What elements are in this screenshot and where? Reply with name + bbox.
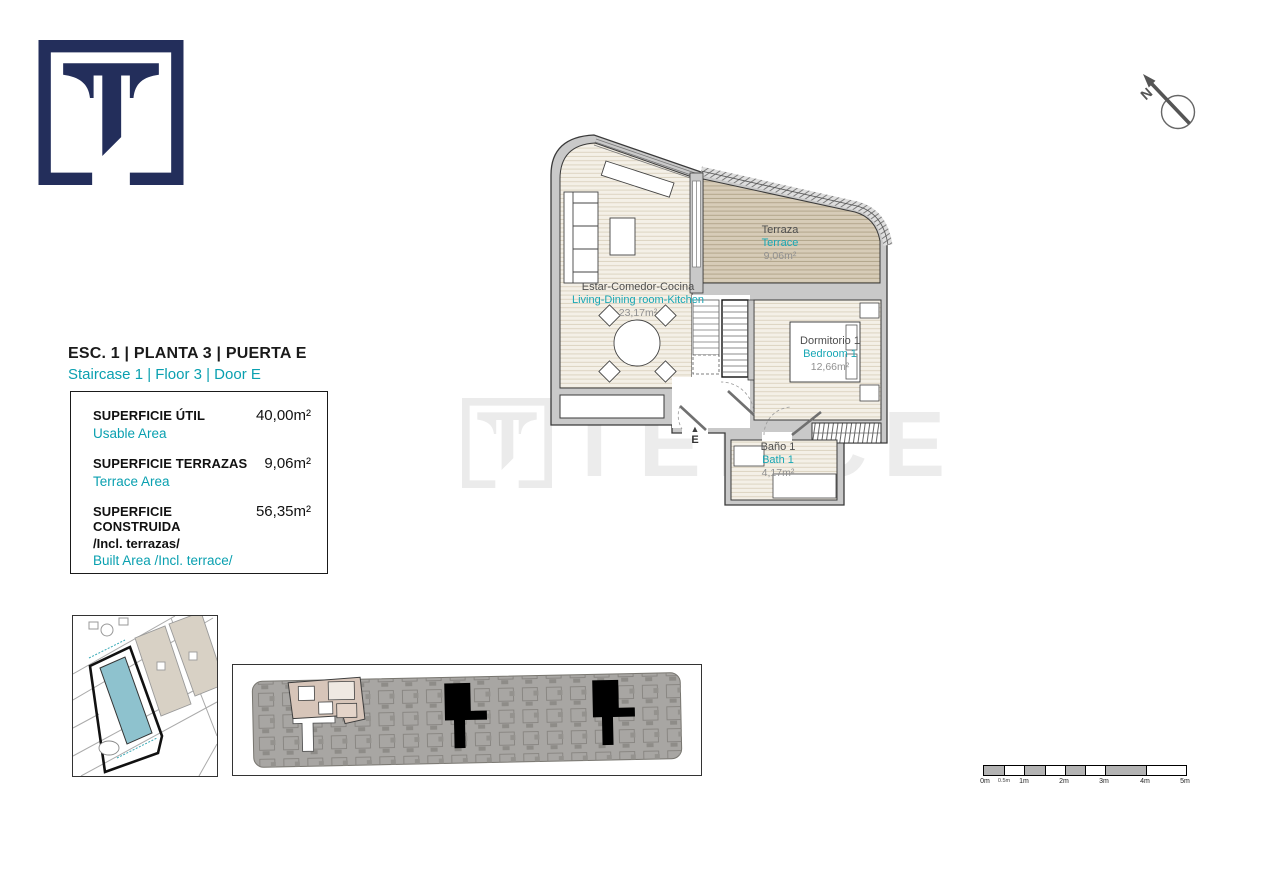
bedroom-label: Dormitorio 1 Bedroom 1 12,66m² (770, 335, 890, 373)
nightstand-top (860, 303, 879, 318)
bedroom-wall (748, 300, 754, 380)
area-row-usable: SUPERFICIE ÚTIL 40,00m² Usable Area (93, 407, 311, 441)
scale-tick-2m: 2m (1059, 778, 1069, 785)
terrace-label: Terraza Terrace 9,06m² (720, 224, 840, 262)
bath-label: Baño 1 Bath 1 4,17m² (728, 441, 828, 479)
title-english: Staircase 1 | Floor 3 | Door E (68, 366, 307, 383)
bedroom-area: 12,66m² (770, 361, 890, 373)
terrace-area: 9,06m² (720, 250, 840, 262)
bedroom-name-es: Dormitorio 1 (770, 335, 890, 348)
sofa (564, 192, 598, 283)
site-plan (72, 615, 218, 777)
scale-tick-3m: 3m (1099, 778, 1109, 785)
site-pool (99, 741, 119, 755)
terrace-label-es: SUPERFICIE TERRAZAS (93, 456, 247, 471)
scale-tick-0m: 0m (980, 778, 990, 785)
area-table: SUPERFICIE ÚTIL 40,00m² Usable Area SUPE… (70, 391, 328, 574)
site-neighbor-buildings (135, 616, 217, 716)
usable-label-en: Usable Area (93, 426, 311, 441)
bath-name-en: Bath 1 (728, 454, 828, 467)
north-compass-icon: N (1138, 72, 1204, 136)
scale-tick-5m: 5m (1180, 778, 1190, 785)
bath-door-opening (762, 432, 792, 441)
site-roundabout (89, 618, 128, 636)
bath-area: 4,17m² (728, 467, 828, 479)
usable-value: 40,00m² (256, 407, 311, 424)
living-area: 23,17m² (558, 307, 718, 319)
plan-sheet: N ESC. 1 | PLANTA 3 | PUERTA E Staircase… (0, 0, 1261, 891)
built-label-en: Built Area /Incl. terrace/ (93, 553, 311, 568)
entrance-marker: ▲ E (683, 425, 707, 446)
page-title-block: ESC. 1 | PLANTA 3 | PUERTA E Staircase 1… (68, 345, 307, 383)
built-label-es: SUPERFICIE CONSTRUIDA (93, 504, 256, 534)
hallway (672, 377, 750, 428)
nightstand-bottom (860, 385, 879, 401)
title-spanish: ESC. 1 | PLANTA 3 | PUERTA E (68, 345, 307, 363)
scale-tick-4m: 4m (1140, 778, 1150, 785)
living-room-label: Estar-Comedor-Cocina Living-Dining room-… (558, 281, 718, 319)
area-row-built: SUPERFICIE CONSTRUIDA 56,35m² /Incl. ter… (93, 503, 311, 568)
built-label-es2: /Incl. terrazas/ (93, 536, 311, 551)
living-name-en: Living-Dining room-Kitchen (558, 294, 718, 307)
coffee-table (610, 218, 635, 255)
site-highlighted-building (100, 657, 152, 744)
entry-niche (560, 395, 664, 418)
bedroom-name-en: Bedroom 1 (770, 348, 890, 361)
entrance-letter: E (683, 435, 707, 446)
scale-bar-track (983, 765, 1187, 776)
terrace-label-en: Terrace Area (93, 474, 311, 489)
scale-bar: 0m 0.5m 1m 2m 3m 4m 5m (983, 765, 1187, 791)
terrace-name-es: Terraza (720, 224, 840, 237)
brand-logo-icon (38, 40, 184, 185)
entrance-arrow-icon: ▲ (683, 425, 707, 434)
scale-tick-05m: 0.5m (998, 778, 1010, 784)
watermark-logo-icon (462, 398, 552, 488)
building-overview-plan (232, 664, 702, 776)
terrace-value: 9,06m² (264, 455, 311, 472)
built-value: 56,35m² (256, 503, 311, 520)
scale-tick-1m: 1m (1019, 778, 1029, 785)
terrace-name-en: Terrace (720, 237, 840, 250)
usable-label-es: SUPERFICIE ÚTIL (93, 408, 205, 423)
area-row-terrace: SUPERFICIE TERRAZAS 9,06m² Terrace Area (93, 455, 311, 489)
staircase-right (722, 300, 748, 377)
bath-name-es: Baño 1 (728, 441, 828, 454)
living-name-es: Estar-Comedor-Cocina (558, 281, 718, 294)
